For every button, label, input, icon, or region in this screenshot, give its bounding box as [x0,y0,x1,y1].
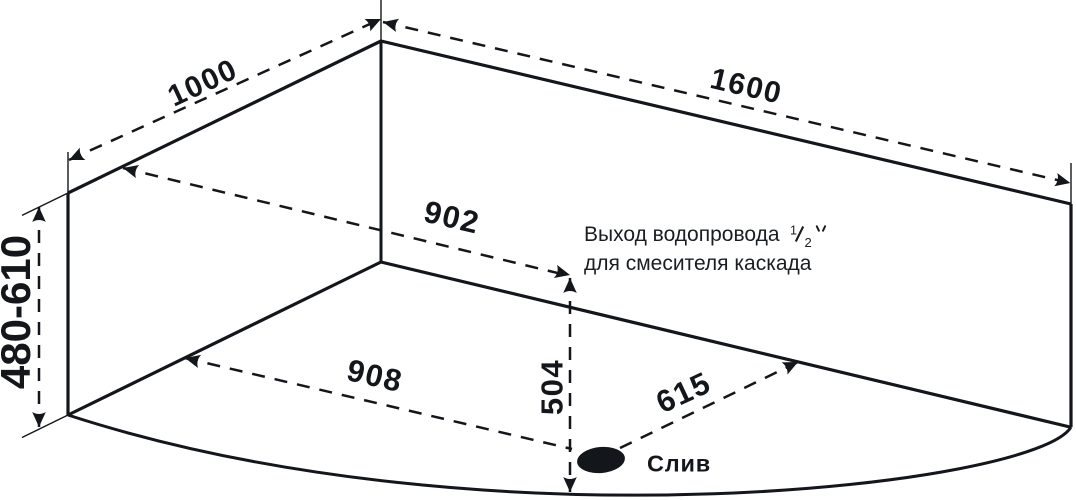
svg-text:для смесителя каскада: для смесителя каскада [584,252,812,275]
svg-text:504: 504 [535,359,570,415]
svg-text:Выход водопровода: Выход водопровода [584,223,780,246]
svg-text:2: 2 [805,235,812,250]
svg-text:480-610: 480-610 [0,235,39,389]
svg-text:1: 1 [790,224,797,238]
svg-text:Слив: Слив [647,451,711,477]
